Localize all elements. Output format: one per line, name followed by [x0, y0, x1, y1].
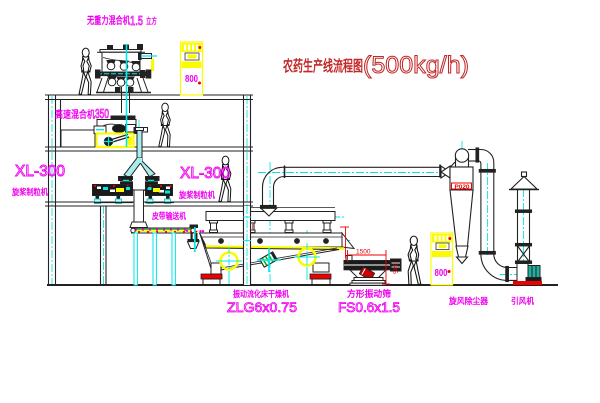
svg-text:旋桨制粒机: 旋桨制粒机	[178, 190, 215, 200]
svg-text:350: 350	[95, 107, 109, 121]
svg-text:800: 800	[185, 74, 198, 85]
svg-text:1.5: 1.5	[130, 13, 143, 28]
svg-text:农药生产线流程图: 农药生产线流程图	[282, 57, 363, 75]
svg-text:振动流化床干燥机: 振动流化床干燥机	[233, 289, 289, 299]
svg-text:XL-300: XL-300	[15, 163, 65, 180]
svg-text:800: 800	[435, 268, 448, 279]
svg-text:立方: 立方	[146, 16, 157, 26]
svg-text:方形振动筛: 方形振动筛	[347, 288, 391, 299]
svg-text:345: 345	[391, 263, 398, 274]
svg-text:FS0.6x1.5: FS0.6x1.5	[338, 299, 400, 315]
svg-text:XL-300: XL-300	[180, 165, 230, 182]
svg-text:ZLG6x0.75: ZLG6x0.75	[227, 299, 297, 315]
svg-text:无重力混合机: 无重力混合机	[86, 14, 130, 27]
svg-text:P020: P020	[455, 185, 470, 191]
svg-text:(500kg/h): (500kg/h)	[363, 52, 469, 79]
svg-text:高速混合机: 高速混合机	[55, 108, 95, 121]
svg-text:旋风除尘器: 旋风除尘器	[448, 296, 488, 306]
svg-text:旋桨制粒机: 旋桨制粒机	[11, 187, 48, 197]
svg-text:1500: 1500	[356, 249, 371, 256]
svg-text:引风机: 引风机	[511, 296, 534, 306]
svg-text:皮带输送机: 皮带输送机	[151, 211, 186, 221]
